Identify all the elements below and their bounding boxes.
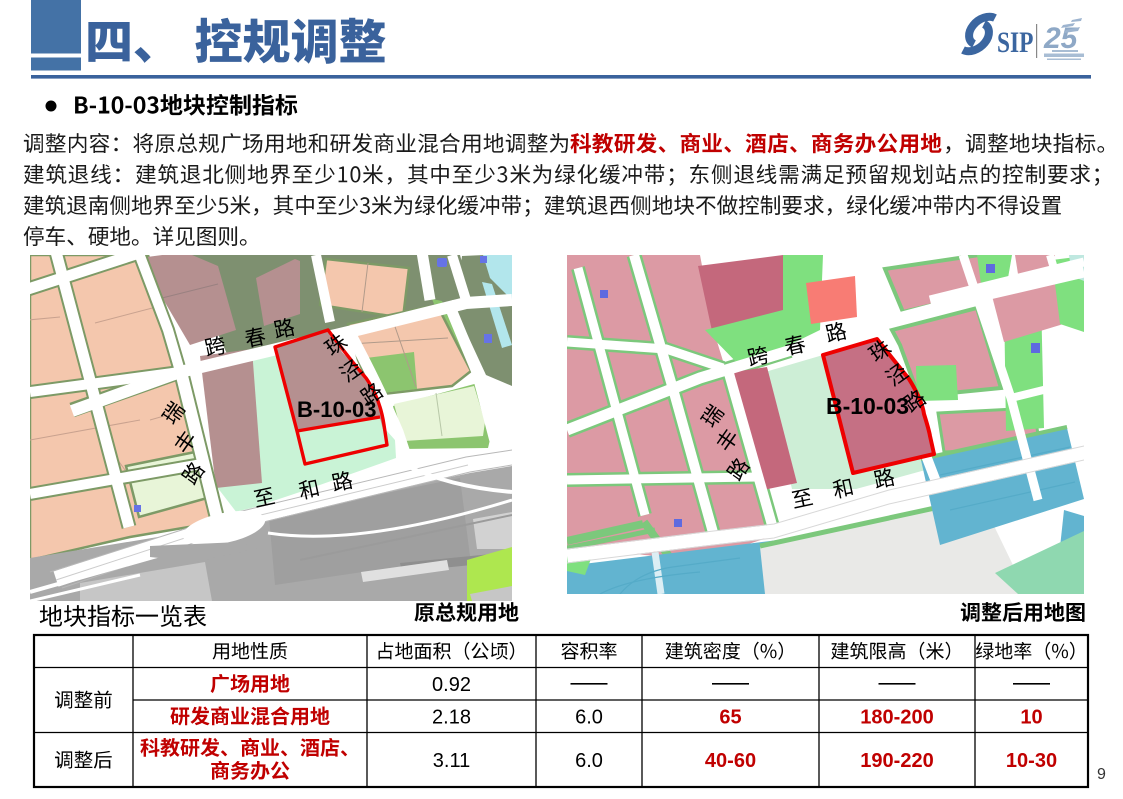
svg-text:2.18: 2.18 — [432, 707, 471, 729]
svg-text:10: 10 — [1020, 707, 1042, 729]
svg-text:65: 65 — [719, 707, 741, 729]
svg-text:SIP: SIP — [997, 25, 1033, 58]
svg-text:B-10-03: B-10-03 — [826, 393, 909, 419]
svg-text:190-220: 190-220 — [860, 750, 933, 772]
svg-text:9: 9 — [1097, 766, 1106, 783]
svg-text:10-30: 10-30 — [1006, 750, 1057, 772]
svg-text:180-200: 180-200 — [860, 707, 933, 729]
svg-text:B-10-03: B-10-03 — [297, 397, 376, 422]
svg-text:6.0: 6.0 — [575, 707, 603, 729]
svg-text:3.11: 3.11 — [433, 750, 470, 772]
svg-text:40-60: 40-60 — [705, 750, 756, 772]
svg-text:0.92: 0.92 — [432, 674, 471, 696]
svg-text:6.0: 6.0 — [575, 750, 603, 772]
